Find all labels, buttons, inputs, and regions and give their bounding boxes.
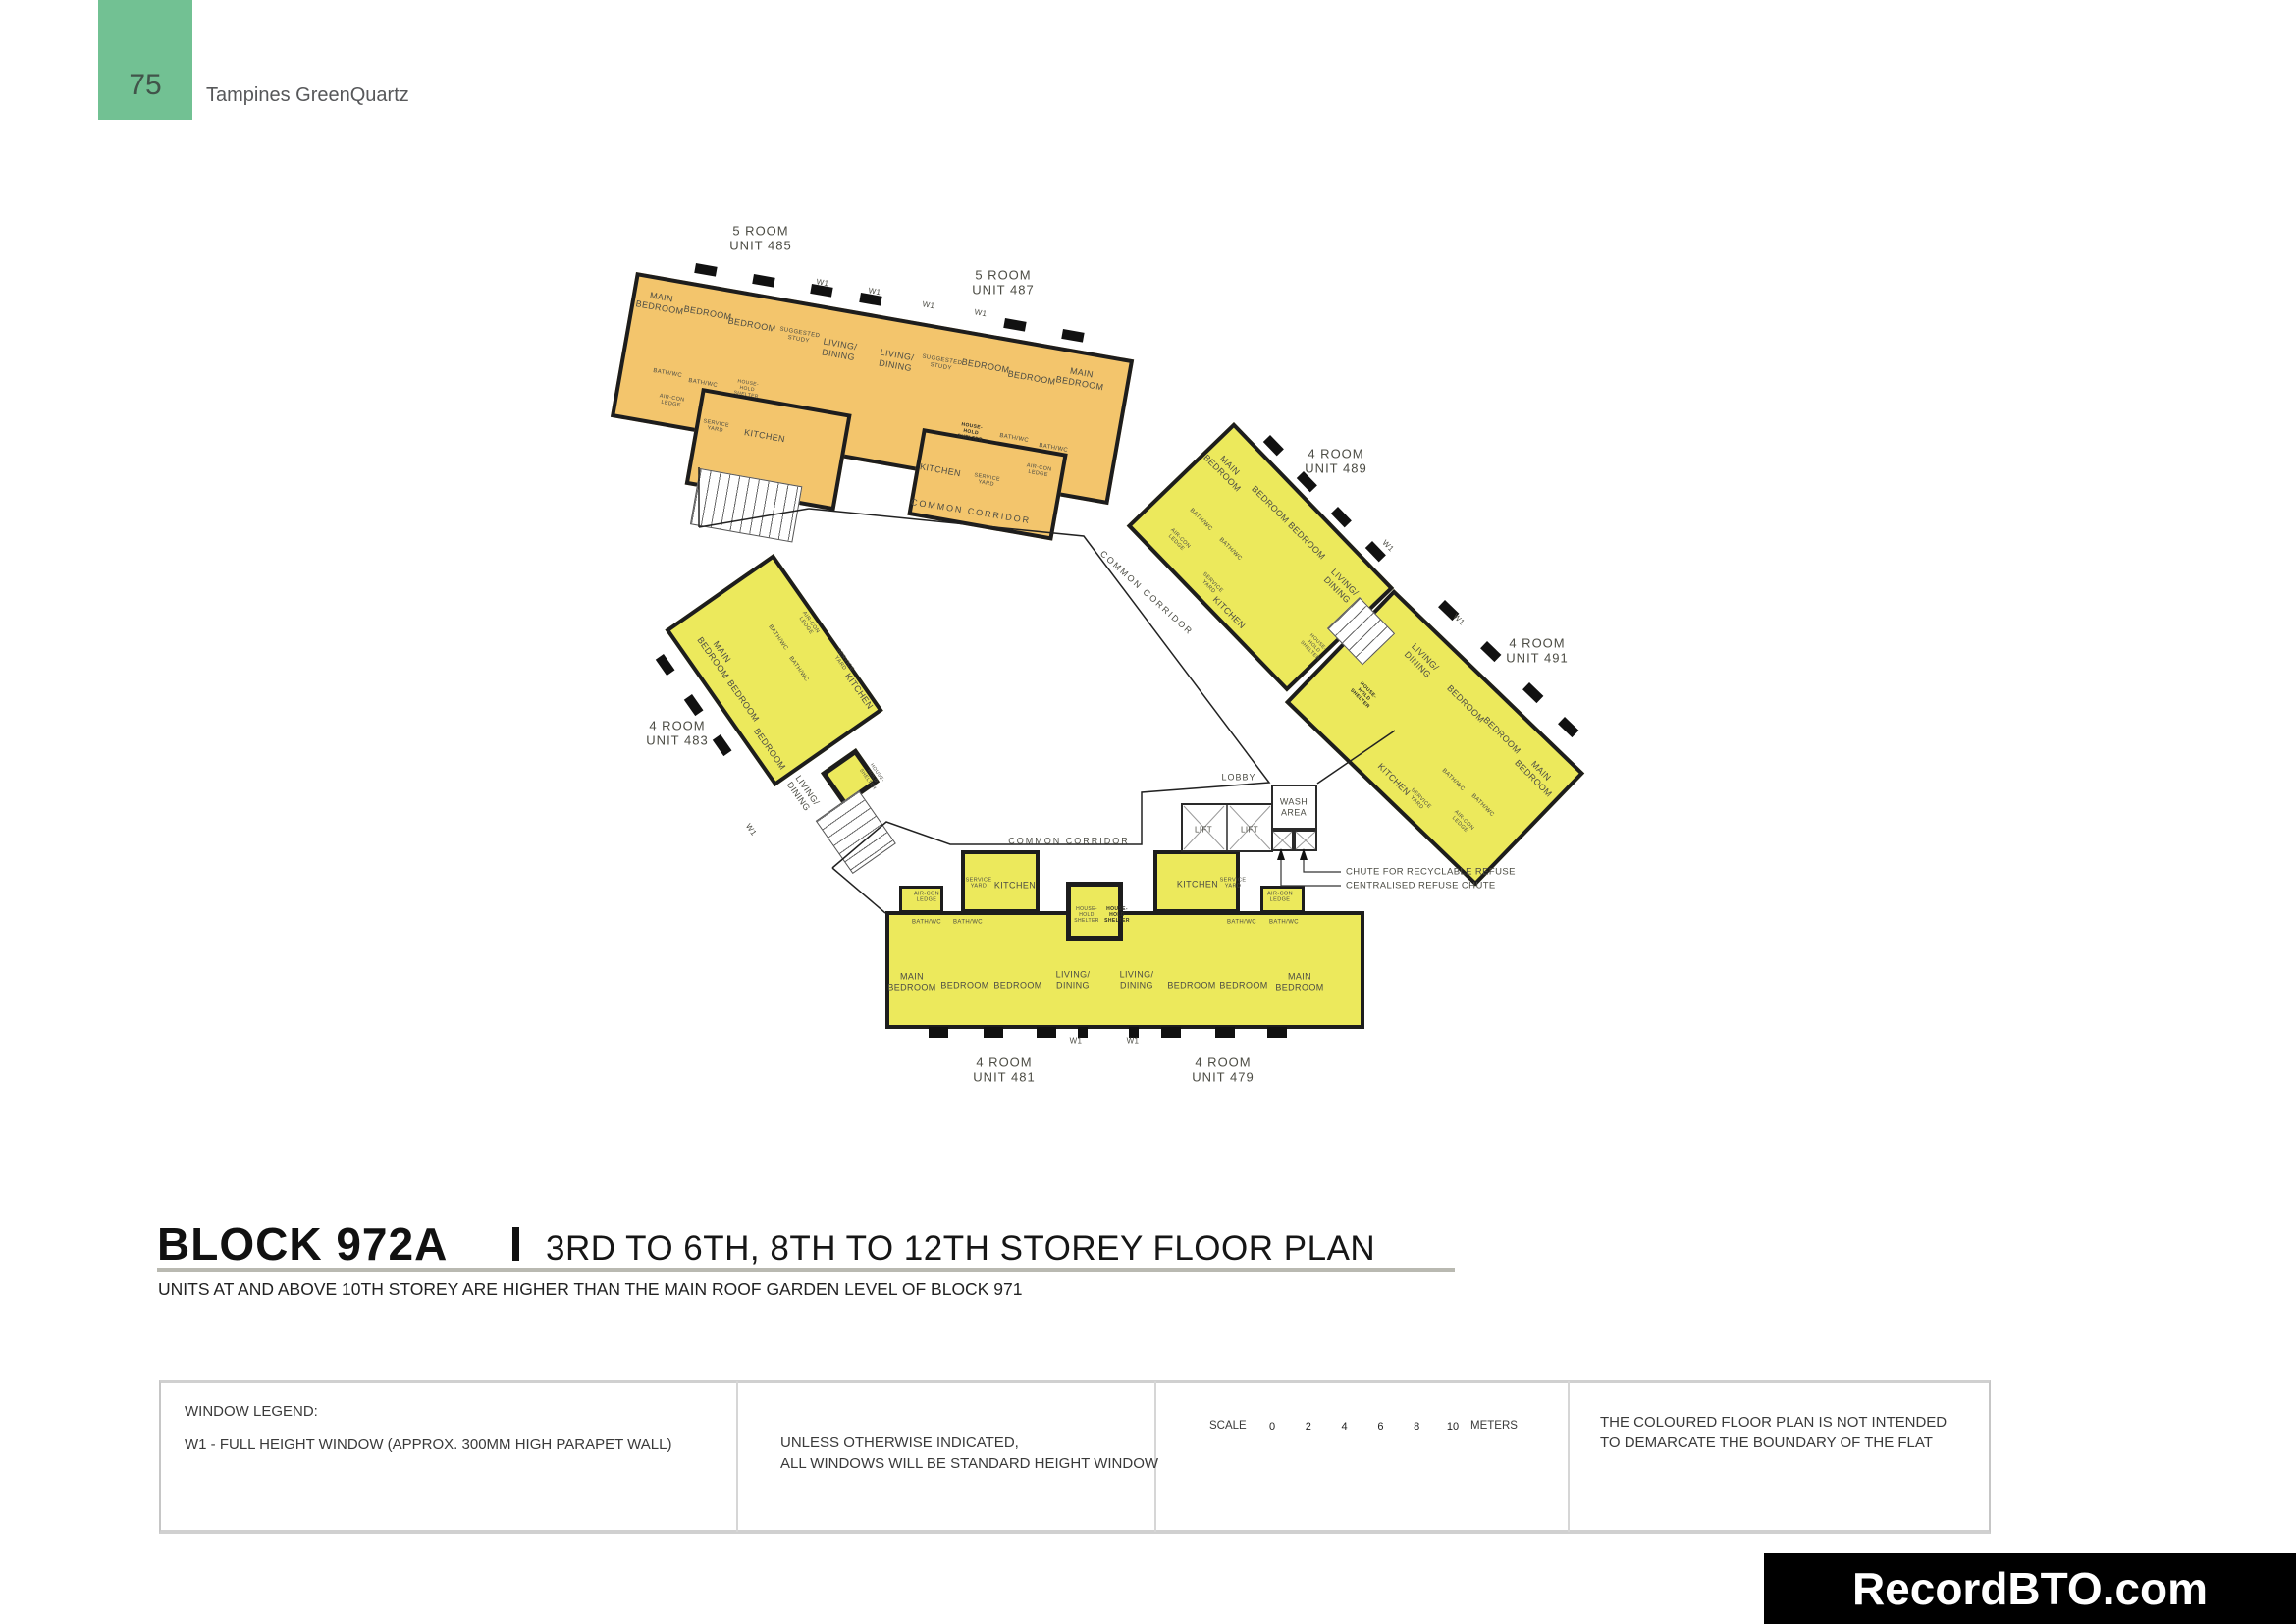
plan-label: W1 <box>1380 538 1396 554</box>
plan-label: AIR-CON LEDGE <box>1025 462 1052 479</box>
plan-label: BEDROOM <box>961 356 1010 375</box>
watermark: RecordBTO.com <box>1764 1553 2296 1624</box>
title-underline <box>157 1268 1455 1272</box>
plan-label: MAIN BEDROOM <box>695 629 740 681</box>
plan-label: SERVICE YARD <box>1405 787 1432 815</box>
plan-label: LIFT <box>1241 825 1258 834</box>
plan-label: WASH AREA <box>1280 796 1308 817</box>
project-title: Tampines GreenQuartz <box>206 84 409 107</box>
plan-label: HOUSE- HOLD SHELTER <box>1299 632 1329 663</box>
plan-label: MAIN BEDROOM <box>1275 971 1323 992</box>
storey-title: 3RD TO 6TH, 8TH TO 12TH STOREY FLOOR PLA… <box>546 1229 1375 1269</box>
plan-label: KITCHEN <box>1177 880 1218 891</box>
window-note-line2: ALL WINDOWS WILL BE STANDARD HEIGHT WIND… <box>780 1455 1158 1472</box>
plan-label: LIVING/ DINING <box>784 774 821 814</box>
plan-label: CHUTE FOR RECYCLABLE REFUSE <box>1346 866 1516 877</box>
plan-label: BATH/WC <box>1217 537 1243 563</box>
boundary-note-line1: THE COLOURED FLOOR PLAN IS NOT INTENDED <box>1600 1414 1947 1431</box>
plan-label: LIVING/ DINING <box>1402 641 1441 680</box>
plan-label: KITCHEN <box>1210 594 1247 630</box>
plan-label: BATH/WC <box>999 433 1030 445</box>
plan-label: W1 <box>868 286 881 298</box>
page-number: 75 <box>98 69 192 102</box>
plan-label: BATH/WC <box>1269 919 1299 926</box>
plan-label: AIR-CON LEDGE <box>658 393 685 409</box>
plan-label: BATH/WC <box>912 919 941 926</box>
scale-tick-label: 8 <box>1414 1421 1419 1433</box>
plan-label: MAIN BEDROOM <box>1513 750 1562 799</box>
plan-label: 4 ROOM UNIT 481 <box>973 1056 1035 1086</box>
legend-divider-1 <box>736 1381 738 1532</box>
plan-label: W1 <box>816 277 829 289</box>
legend-divider-3 <box>1568 1381 1570 1532</box>
plan-label: 5 ROOM UNIT 485 <box>729 224 791 254</box>
plan-label: BEDROOM <box>1007 368 1056 387</box>
plan-label: BEDROOM <box>727 315 776 334</box>
plan-label: LIVING/ DINING <box>821 337 858 363</box>
scale-tick-label: 0 <box>1269 1421 1275 1433</box>
window-legend-title: WINDOW LEGEND: <box>185 1403 318 1420</box>
plan-label: BATH/WC <box>953 919 983 926</box>
plan-label: BATH/WC <box>1188 508 1213 533</box>
plan-label: COMMON CORRIDOR <box>1008 837 1130 847</box>
plan-label: CENTRALISED REFUSE CHUTE <box>1346 880 1496 891</box>
plan-label: AIR-CON LEDGE <box>914 892 939 904</box>
plan-label: SERVICE YARD <box>973 472 1001 489</box>
plan-label: SERVICE YARD <box>1220 878 1247 891</box>
title-divider <box>512 1227 519 1261</box>
plan-label: HOUSE- HOLD SHELTER <box>1349 680 1379 711</box>
scale-tick-label: 10 <box>1447 1421 1459 1433</box>
plan-label: MAIN BEDROOM <box>1201 445 1251 494</box>
plan-label: 5 ROOM UNIT 487 <box>972 268 1034 298</box>
plan-label: BATH/WC <box>688 378 719 390</box>
window-note-line1: UNLESS OTHERWISE INDICATED, <box>780 1435 1019 1451</box>
plan-label: LIVING/ DINING <box>878 348 915 374</box>
plan-label: KITCHEN <box>994 881 1036 892</box>
plan-label: BATH/WC <box>1227 919 1256 926</box>
plan-label: 4 ROOM UNIT 483 <box>646 719 708 749</box>
plan-label: BEDROOM <box>752 727 788 772</box>
plan-label: W1 <box>1070 1036 1083 1045</box>
plan-label: KITCHEN <box>843 672 876 712</box>
plan-label: AIR-CON LEDGE <box>795 611 821 639</box>
plan-label: BATH/WC <box>1440 768 1466 793</box>
plan-label: LIVING/ DINING <box>1321 567 1361 606</box>
plan-label: BEDROOM <box>725 678 762 724</box>
plan-label: KITCHEN <box>743 427 786 445</box>
plan-label: AIR-CON LEDGE <box>1164 527 1192 555</box>
plan-label: SERVICE YARD <box>702 418 730 435</box>
plan-label: W1 <box>743 822 758 838</box>
plan-label: W1 <box>1451 612 1467 627</box>
plan-label: BATH/WC <box>786 656 809 684</box>
block-title: BLOCK 972A <box>157 1218 448 1271</box>
plan-label: HOUSE- HOLD SHELTER <box>857 761 885 791</box>
plan-label: BEDROOM <box>1481 715 1522 756</box>
plan-label: 4 ROOM UNIT 491 <box>1506 636 1568 667</box>
scale-tick-label: 2 <box>1306 1421 1311 1433</box>
plan-label: BATH/WC <box>1469 793 1495 819</box>
plan-label: MAIN BEDROOM <box>887 971 935 992</box>
plan-label: 4 ROOM UNIT 489 <box>1305 447 1366 477</box>
boundary-note-line2: TO DEMARCATE THE BOUNDARY OF THE FLAT <box>1600 1435 1933 1451</box>
plan-label: AIR-CON LEDGE <box>1267 892 1293 904</box>
plan-label: KITCHEN <box>919 461 962 479</box>
scale-tick-label: 4 <box>1342 1421 1348 1433</box>
plan-label: BATH/WC <box>766 624 788 653</box>
plan-label: BATH/WC <box>653 368 683 380</box>
scale-label: SCALE <box>1209 1420 1247 1432</box>
plan-label: BEDROOM <box>1250 484 1291 525</box>
plan-label: W1 <box>974 307 988 319</box>
plan-label: BEDROOM <box>993 981 1041 992</box>
plan-label: BEDROOM <box>683 303 732 322</box>
plan-label: HOUSE- HOLD SHELTER <box>1104 907 1130 925</box>
plan-label: MAIN BEDROOM <box>635 288 686 316</box>
plan-label: LIVING/ DINING <box>1056 969 1091 990</box>
plan-label: BEDROOM <box>1445 683 1486 725</box>
plan-label: BEDROOM <box>1167 981 1215 992</box>
plan-label: BATH/WC <box>1039 443 1069 455</box>
plan-label: COMMON CORRIDOR <box>1098 549 1196 638</box>
plan-label: BEDROOM <box>1219 981 1267 992</box>
plan-label: 4 ROOM UNIT 479 <box>1192 1056 1254 1086</box>
plan-label: HOUSE- HOLD SHELTER <box>1074 907 1099 925</box>
window-legend-item: W1 - FULL HEIGHT WINDOW (APPROX. 300MM H… <box>185 1436 671 1453</box>
plan-label: LIFT <box>1195 825 1212 834</box>
scale-unit: METERS <box>1470 1420 1518 1432</box>
plan-label: BEDROOM <box>1286 520 1327 562</box>
plan-label: W1 <box>922 299 935 311</box>
plan-label: SERVICE YARD <box>1197 571 1224 599</box>
plan-label: LIVING/ DINING <box>1120 969 1154 990</box>
plan-label: HOUSE- HOLD SHELTER <box>957 422 985 444</box>
plan-label: SUGGESTED STUDY <box>777 326 820 347</box>
plan-label: BEDROOM <box>940 981 988 992</box>
plan-label: MAIN BEDROOM <box>1055 363 1106 392</box>
plan-label: W1 <box>1127 1036 1140 1045</box>
storey-note: UNITS AT AND ABOVE 10TH STOREY ARE HIGHE… <box>158 1279 1022 1300</box>
scale-tick-label: 6 <box>1377 1421 1383 1433</box>
plan-label: AIR-CON LEDGE <box>1448 809 1475 837</box>
plan-label: HOUSE- HOLD SHELTER <box>733 379 761 401</box>
plan-label: COMMON CORRIDOR <box>910 497 1032 526</box>
plan-label: SERVICE YARD <box>966 878 992 891</box>
plan-label: SUGGESTED STUDY <box>920 353 962 374</box>
plan-label: LOBBY <box>1221 773 1255 784</box>
